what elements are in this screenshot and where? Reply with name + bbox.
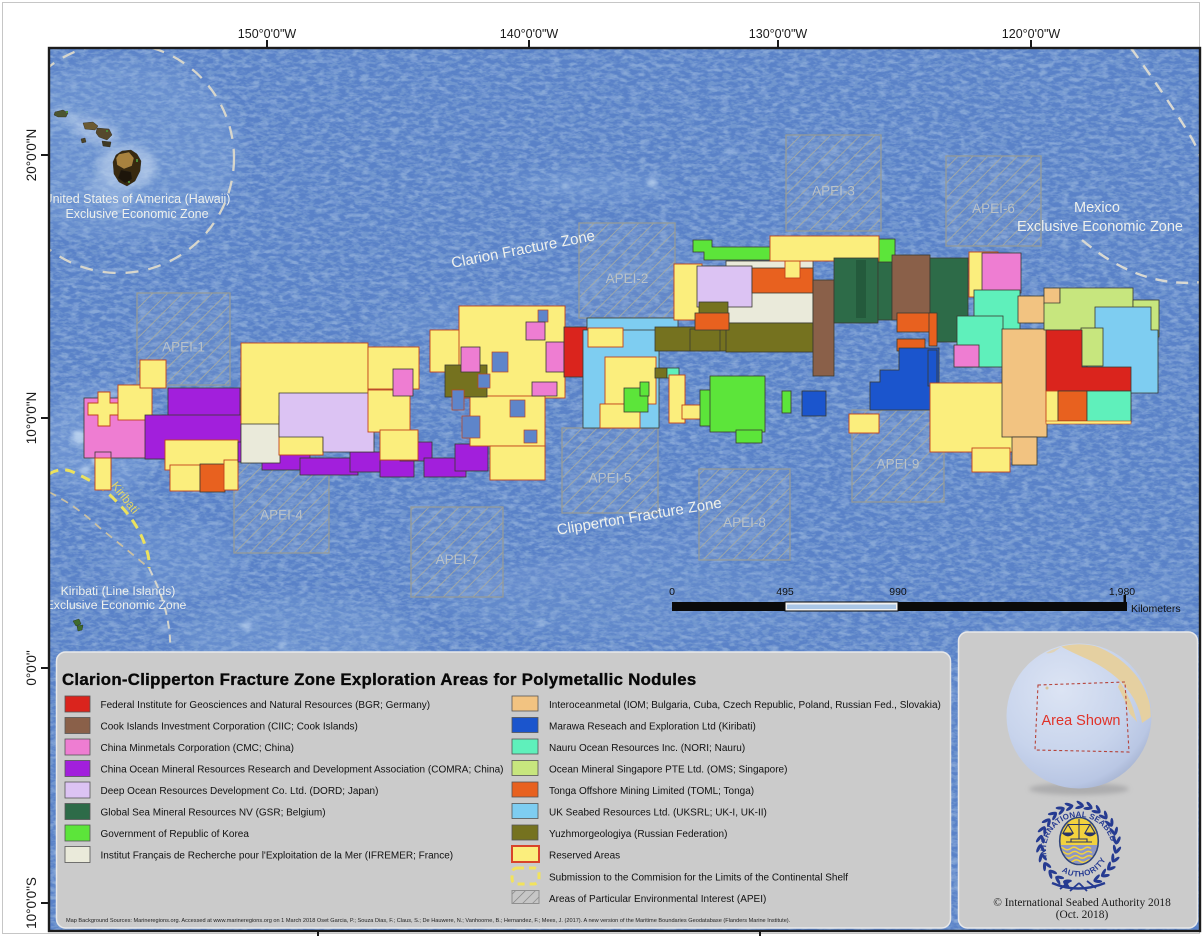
svg-text:120°0'0"W: 120°0'0"W bbox=[1002, 27, 1061, 41]
svg-text:APEI-6: APEI-6 bbox=[972, 201, 1015, 216]
svg-text:Reserved Areas: Reserved Areas bbox=[549, 851, 620, 862]
svg-text:(Oct. 2018): (Oct. 2018) bbox=[1056, 909, 1109, 921]
svg-text:Areas of Particular Environmen: Areas of Particular Environmental Intere… bbox=[549, 894, 766, 905]
svg-text:APEI-7: APEI-7 bbox=[436, 552, 479, 567]
svg-text:Government of Republic of Kore: Government of Republic of Korea bbox=[101, 829, 250, 840]
svg-text:Deep Ocean Resources Developme: Deep Ocean Resources Development Co. Ltd… bbox=[101, 786, 379, 797]
svg-text:Cook Islands Investment Corpor: Cook Islands Investment Corporation (CII… bbox=[101, 722, 358, 733]
svg-text:0: 0 bbox=[669, 586, 675, 598]
svg-text:Global Sea Mineral Resources N: Global Sea Mineral Resources NV (GSR; Be… bbox=[101, 808, 326, 819]
svg-text:495: 495 bbox=[776, 586, 794, 598]
svg-text:Kilometers: Kilometers bbox=[1131, 603, 1181, 615]
svg-text:APEI-9: APEI-9 bbox=[877, 456, 920, 471]
svg-text:Submission to the Commision fo: Submission to the Commision for the Limi… bbox=[549, 873, 848, 884]
svg-text:Clarion-Clipperton Fracture Zo: Clarion-Clipperton Fracture Zone Explora… bbox=[62, 670, 697, 689]
svg-text:Ocean Mineral Singapore PTE Lt: Ocean Mineral Singapore PTE Ltd. (OMS; S… bbox=[549, 765, 787, 776]
svg-text:140°0'0"W: 140°0'0"W bbox=[500, 27, 559, 41]
svg-text:Exclusive Economic Zone: Exclusive Economic Zone bbox=[65, 207, 208, 221]
svg-text:Tonga Offshore Mining Limited: Tonga Offshore Mining Limited (TOML; Ton… bbox=[549, 786, 754, 797]
svg-text:APEI-8: APEI-8 bbox=[723, 515, 766, 530]
svg-text:20°0'0"N: 20°0'0"N bbox=[24, 129, 39, 182]
svg-text:© International Seabed Authori: © International Seabed Authority 2018 bbox=[993, 897, 1171, 909]
svg-text:Institut Français de Recherche: Institut Français de Recherche pour l'Ex… bbox=[101, 851, 454, 862]
svg-text:Area Shown: Area Shown bbox=[1042, 713, 1121, 729]
svg-text:APEI-4: APEI-4 bbox=[260, 507, 303, 522]
svg-text:10°0'0"S: 10°0'0"S bbox=[24, 877, 39, 929]
svg-text:130°0'0"W: 130°0'0"W bbox=[749, 27, 808, 41]
svg-text:APEI-5: APEI-5 bbox=[589, 470, 632, 485]
svg-text:APEI-2: APEI-2 bbox=[606, 271, 649, 286]
svg-text:APEI-3: APEI-3 bbox=[812, 184, 855, 199]
svg-text:Exclusive Economic Zone: Exclusive Economic Zone bbox=[46, 598, 187, 612]
svg-text:APEI-1: APEI-1 bbox=[162, 339, 205, 354]
svg-text:Mexico: Mexico bbox=[1074, 200, 1120, 216]
svg-text:10°0'0"N: 10°0'0"N bbox=[24, 392, 39, 445]
svg-text:Yuzhmorgeologiya (Russian Fede: Yuzhmorgeologiya (Russian Federation) bbox=[549, 829, 727, 840]
svg-text:1,980: 1,980 bbox=[1109, 586, 1135, 598]
svg-text:990: 990 bbox=[889, 586, 907, 598]
svg-text:China Ocean Mineral Resources: China Ocean Mineral Resources Research a… bbox=[101, 765, 504, 776]
svg-text:0°0'0": 0°0'0" bbox=[24, 650, 39, 686]
svg-text:Nauru Ocean Resources Inc. (NO: Nauru Ocean Resources Inc. (NORI; Nauru) bbox=[549, 743, 745, 754]
svg-text:China Minmetals Corporation (C: China Minmetals Corporation (CMC; China) bbox=[101, 743, 294, 754]
svg-text:Marawa Reseach and Exploration: Marawa Reseach and Exploration Ltd (Kiri… bbox=[549, 722, 756, 733]
svg-text:Exclusive Economic Zone: Exclusive Economic Zone bbox=[1017, 219, 1183, 235]
svg-text:UK Seabed Resources Ltd. (UKSR: UK Seabed Resources Ltd. (UKSRL; UK-I, U… bbox=[549, 808, 767, 819]
svg-text:Map Background Sources: Marine: Map Background Sources: Marineregions.or… bbox=[66, 918, 791, 924]
svg-text:United States of America (Hawa: United States of America (Hawaii) bbox=[44, 192, 231, 206]
svg-text:Federal Institute for Geoscien: Federal Institute for Geosciences and Na… bbox=[101, 700, 431, 711]
svg-text:Interoceanmetal (IOM; Bulgaria: Interoceanmetal (IOM; Bulgaria, Cuba, Cz… bbox=[549, 700, 941, 711]
svg-text:Kiribati (Line Islands): Kiribati (Line Islands) bbox=[61, 584, 176, 598]
svg-text:150°0'0"W: 150°0'0"W bbox=[238, 27, 297, 41]
